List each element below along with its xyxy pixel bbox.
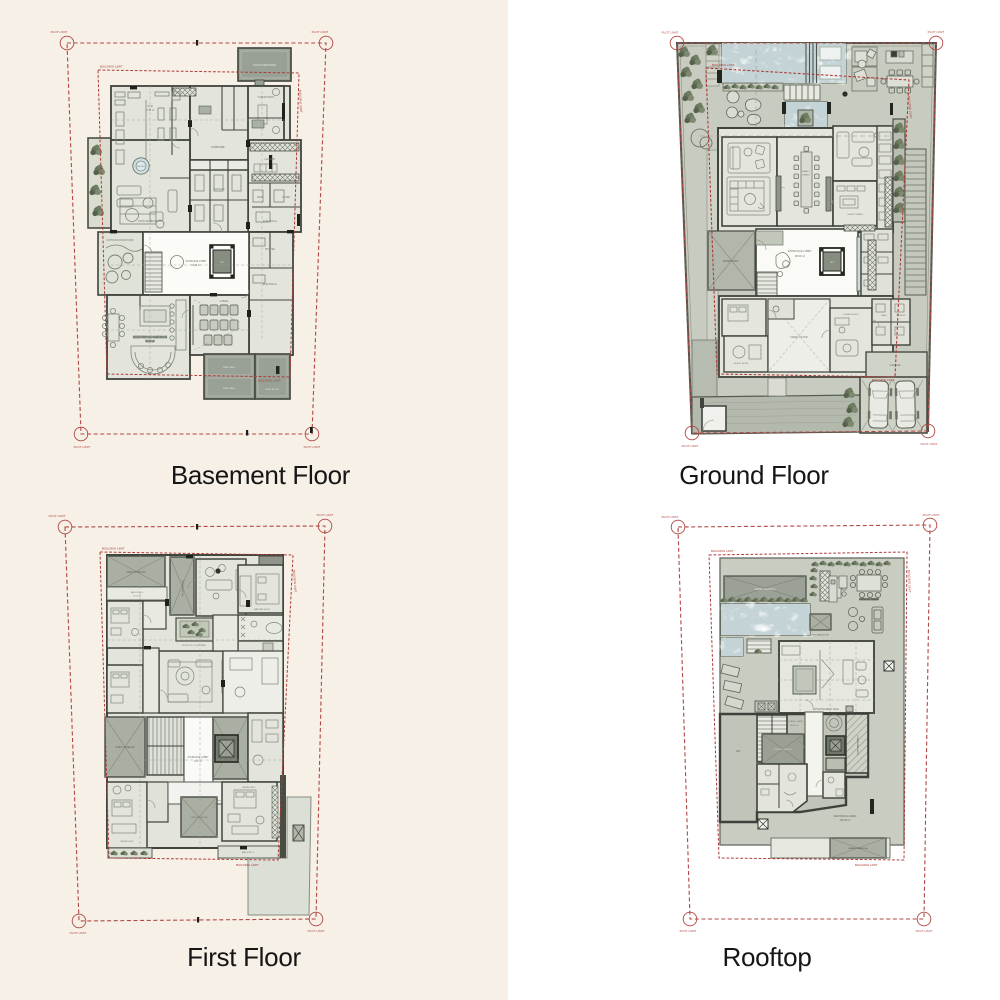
svg-text:BUILDING LIMIT: BUILDING LIMIT xyxy=(712,63,735,67)
svg-text:MASSAGE: MASSAGE xyxy=(213,188,225,191)
svg-text:POOL PUMP ROOM: POOL PUMP ROOM xyxy=(253,64,275,67)
svg-text:BEDROOM 1: BEDROOM 1 xyxy=(242,787,256,789)
svg-text:STAIRCASE LOBBY: STAIRCASE LOBBY xyxy=(185,260,207,263)
svg-text:PLOT LIMIT: PLOT LIMIT xyxy=(921,442,938,446)
svg-text:BUILDING LIMIT: BUILDING LIMIT xyxy=(258,379,281,383)
svg-text:BUILDING LIMIT: BUILDING LIMIT xyxy=(907,570,912,593)
svg-text:OUTDOOR COURTYARD: OUTDOOR COURTYARD xyxy=(107,239,134,242)
svg-text:54.00 m²: 54.00 m² xyxy=(191,264,200,267)
svg-text:LIVING AREA: LIVING AREA xyxy=(138,220,153,223)
svg-text:WATER BODY: WATER BODY xyxy=(723,260,739,263)
svg-text:38.00 m²: 38.00 m² xyxy=(795,254,805,258)
svg-text:PLOT LIMIT: PLOT LIMIT xyxy=(51,30,68,34)
svg-text:PLOT LIMIT: PLOT LIMIT xyxy=(662,515,679,519)
svg-text:BUILDING LIMIT: BUILDING LIMIT xyxy=(100,65,123,69)
svg-text:18.0 m²: 18.0 m² xyxy=(194,760,202,763)
svg-text:WARDROBE: WARDROBE xyxy=(211,146,225,149)
svg-text:OUTDOOR COURTYARD: OUTDOOR COURTYARD xyxy=(182,644,207,647)
svg-text:PLOT LIMIT: PLOT LIMIT xyxy=(682,444,699,448)
svg-text:BALCONY 4: BALCONY 4 xyxy=(131,591,144,594)
svg-text:ENTERTAINMENT AREA: ENTERTAINMENT AREA xyxy=(813,708,840,711)
svg-text:BUILDING LIMIT: BUILDING LIMIT xyxy=(872,378,895,382)
svg-text:MASTER SUITE: MASTER SUITE xyxy=(254,608,271,611)
svg-text:PLOT LIMIT: PLOT LIMIT xyxy=(308,929,325,933)
svg-text:DINING: DINING xyxy=(802,175,810,177)
svg-text:CONDENSER UNITS: CONDENSER UNITS xyxy=(856,735,858,755)
svg-text:PLOT LIMIT: PLOT LIMIT xyxy=(928,30,945,34)
svg-text:GUEST SUITE: GUEST SUITE xyxy=(734,363,749,365)
svg-text:OPEN PERGOLA: OPEN PERGOLA xyxy=(181,580,184,597)
svg-text:PLOT LIMIT: PLOT LIMIT xyxy=(923,513,940,517)
svg-text:Basement Floor: Basement Floor xyxy=(171,460,351,490)
svg-text:TURKISH BATH: TURKISH BATH xyxy=(258,96,275,99)
svg-text:GREEN PERGOLA: GREEN PERGOLA xyxy=(755,588,776,591)
svg-text:PLOT LIMIT: PLOT LIMIT xyxy=(916,929,933,933)
svg-text:PLOT LIMIT: PLOT LIMIT xyxy=(317,513,334,517)
svg-text:BEDROOM 2: BEDROOM 2 xyxy=(120,841,134,843)
svg-text:MAID: MAID xyxy=(882,314,888,317)
svg-text:GUEST DINING: GUEST DINING xyxy=(847,214,863,216)
svg-text:BUILDING LIMIT: BUILDING LIMIT xyxy=(855,863,878,867)
svg-text:47.85 m²: 47.85 m² xyxy=(145,109,154,112)
svg-text:PLOT LIMIT: PLOT LIMIT xyxy=(662,31,679,35)
svg-text:PLOT LIMIT: PLOT LIMIT xyxy=(74,445,91,449)
svg-text:WINE CAVE: WINE CAVE xyxy=(223,366,236,369)
svg-text:FAMILY: FAMILY xyxy=(802,170,810,173)
svg-text:JACUZZI: JACUZZI xyxy=(137,165,145,168)
svg-text:BUILDING LIMIT: BUILDING LIMIT xyxy=(236,863,259,867)
svg-text:PLOT LIMIT: PLOT LIMIT xyxy=(49,514,66,518)
svg-text:MECHANICAL AREA: MECHANICAL AREA xyxy=(834,815,857,818)
svg-text:PLOT LIMIT: PLOT LIMIT xyxy=(680,929,697,933)
svg-text:WINE CAVE: WINE CAVE xyxy=(223,387,236,390)
svg-text:POOL BEDROOM: POOL BEDROOM xyxy=(811,635,828,637)
svg-text:Rooftop: Rooftop xyxy=(723,942,812,972)
svg-text:STAIRCASE LOBBY: STAIRCASE LOBBY xyxy=(187,756,209,759)
svg-text:OPEN TO BELOW: OPEN TO BELOW xyxy=(126,572,146,574)
svg-text:HOME OFFICE: HOME OFFICE xyxy=(843,314,859,316)
svg-text:GYM: GYM xyxy=(147,106,152,108)
svg-text:25.00 m²: 25.00 m² xyxy=(790,724,799,727)
svg-text:OUTDOOR DINING: OUTDOOR DINING xyxy=(859,599,879,601)
svg-text:135.00 m²: 135.00 m² xyxy=(840,819,851,822)
svg-text:ELECTRICAL: ELECTRICAL xyxy=(263,220,278,223)
svg-text:STORE: STORE xyxy=(282,197,290,199)
svg-text:MAID: MAID xyxy=(257,196,263,199)
svg-text:Ground Floor: Ground Floor xyxy=(679,460,829,490)
svg-text:PLOT LIMIT: PLOT LIMIT xyxy=(312,30,329,34)
svg-text:BALCONY 1: BALCONY 1 xyxy=(242,851,255,854)
svg-text:KITCHEN: KITCHEN xyxy=(265,249,275,251)
svg-text:FAMILY FOYER: FAMILY FOYER xyxy=(790,336,807,339)
svg-text:PLOT LIMIT: PLOT LIMIT xyxy=(70,931,87,935)
svg-text:OPEN TO BELOW: OPEN TO BELOW xyxy=(775,749,792,751)
svg-text:OPEN TO BELOW: OPEN TO BELOW xyxy=(115,747,135,749)
svg-text:OPEN TO BELOW: OPEN TO BELOW xyxy=(191,817,208,819)
svg-text:GREEN PERGOLA: GREEN PERGOLA xyxy=(849,847,869,850)
svg-text:CINEMA: CINEMA xyxy=(220,300,229,303)
svg-text:ENTRANCE LOBBY: ENTRANCE LOBBY xyxy=(788,249,812,253)
svg-text:First Floor: First Floor xyxy=(187,942,301,972)
svg-text:UAT: UAT xyxy=(736,750,741,753)
svg-text:LAUNDRY: LAUNDRY xyxy=(265,158,276,161)
svg-text:PLOT LIMIT: PLOT LIMIT xyxy=(304,445,321,449)
svg-text:PUMP ROOM: PUMP ROOM xyxy=(265,389,279,391)
svg-text:BUILDING LIMIT: BUILDING LIMIT xyxy=(102,547,125,551)
svg-text:ELECTRICAL: ELECTRICAL xyxy=(263,283,278,286)
svg-text:BUILDING LIMIT: BUILDING LIMIT xyxy=(711,549,734,553)
svg-text:PARCADE LOBBY: PARCADE LOBBY xyxy=(785,720,804,723)
